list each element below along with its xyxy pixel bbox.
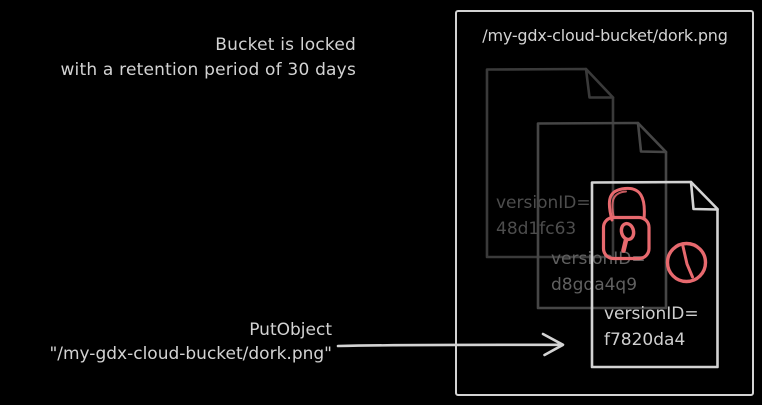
- arrow-icon: [338, 334, 563, 355]
- clock-icon: [668, 244, 706, 282]
- diagram-canvas: { "annotation": { "line1": "Bucket is lo…: [0, 0, 762, 405]
- action-target: "/my-gdx-cloud-bucket/dork.png": [0, 342, 332, 366]
- version-label: versionID=: [604, 301, 699, 327]
- version-id: f7820da4: [604, 327, 699, 353]
- action-name: PutObject: [0, 318, 332, 342]
- putobject-label: PutObject "/my-gdx-cloud-bucket/dork.png…: [0, 318, 332, 366]
- version-text-front: versionID= f7820da4: [604, 301, 699, 353]
- lock-icon: [604, 188, 650, 258]
